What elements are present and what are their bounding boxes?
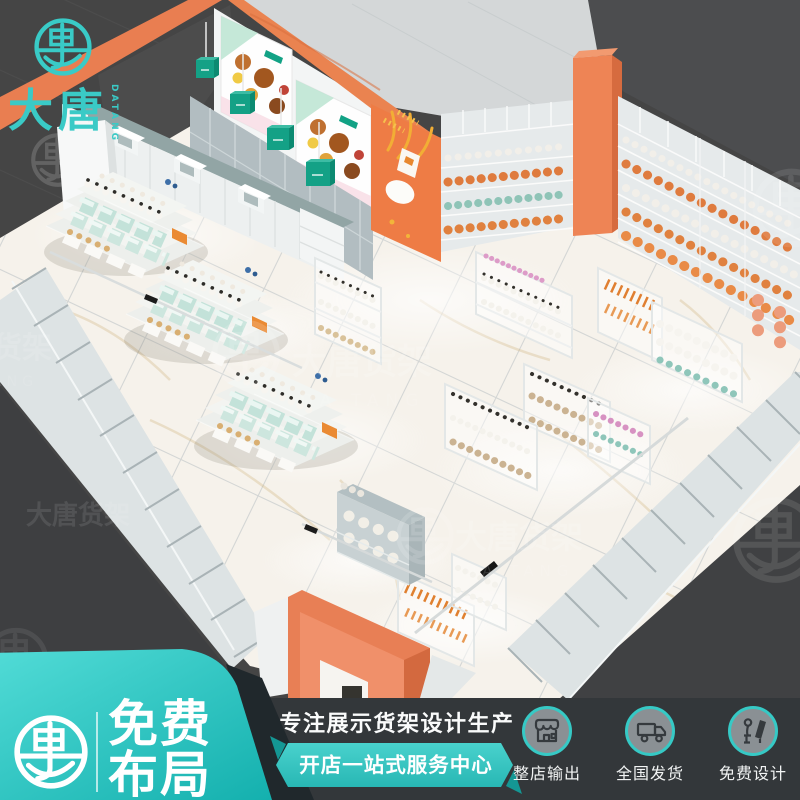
- feature-shipping: 全国发货: [603, 705, 697, 784]
- datang-emblem-icon: [31, 15, 95, 79]
- store-layout-poster: 大唐货架 DA TANG: [0, 0, 800, 800]
- feature-label: 免费设计: [719, 760, 787, 784]
- watermark-text-cn: 大唐货架: [292, 342, 432, 383]
- watermark-bottom-left: 大唐货架: [26, 500, 130, 531]
- slogan-sub: 开店一站式服务中心: [299, 753, 493, 777]
- badge-line2: 布局: [108, 750, 212, 800]
- badge-text: 免费 布局: [108, 699, 212, 800]
- slogan-ribbon: 开店一站式服务中心: [272, 738, 520, 794]
- datang-logo: 大唐 DATANG: [0, 0, 180, 180]
- watermark-text-cn: 大唐货架: [0, 331, 52, 366]
- storefront-icon: [521, 705, 573, 757]
- badge-divider: [96, 712, 98, 792]
- feature-label: 全国发货: [616, 760, 684, 784]
- wall-shelving-left-section: [441, 100, 575, 252]
- badge-line1: 免费: [108, 699, 212, 750]
- corner-orange-pillar: [573, 48, 622, 236]
- watermark-text-en: DA TANG: [0, 374, 38, 390]
- logo-text-en: DATANG: [109, 84, 119, 143]
- watermark-text-cn: 大唐货架: [455, 518, 583, 556]
- feature-design: 免费设计: [706, 705, 800, 784]
- logo-text-cn: 大唐: [8, 74, 108, 139]
- truck-icon: [624, 705, 676, 757]
- feature-whole-store: 整店输出: [500, 705, 594, 784]
- watermark-text-cn: 大唐货架: [26, 500, 130, 531]
- watermark-text-en: DA TANG: [465, 562, 574, 580]
- feature-label: 整店输出: [513, 760, 581, 784]
- watermark-text-en: DA TANG: [300, 391, 425, 411]
- footer-features: 整店输出 全国发货 免费设计: [500, 705, 800, 784]
- designer-icon: [727, 705, 779, 757]
- slogan-main: 专注展示货架设计生产: [276, 706, 518, 738]
- badge-emblem-icon: [10, 711, 92, 793]
